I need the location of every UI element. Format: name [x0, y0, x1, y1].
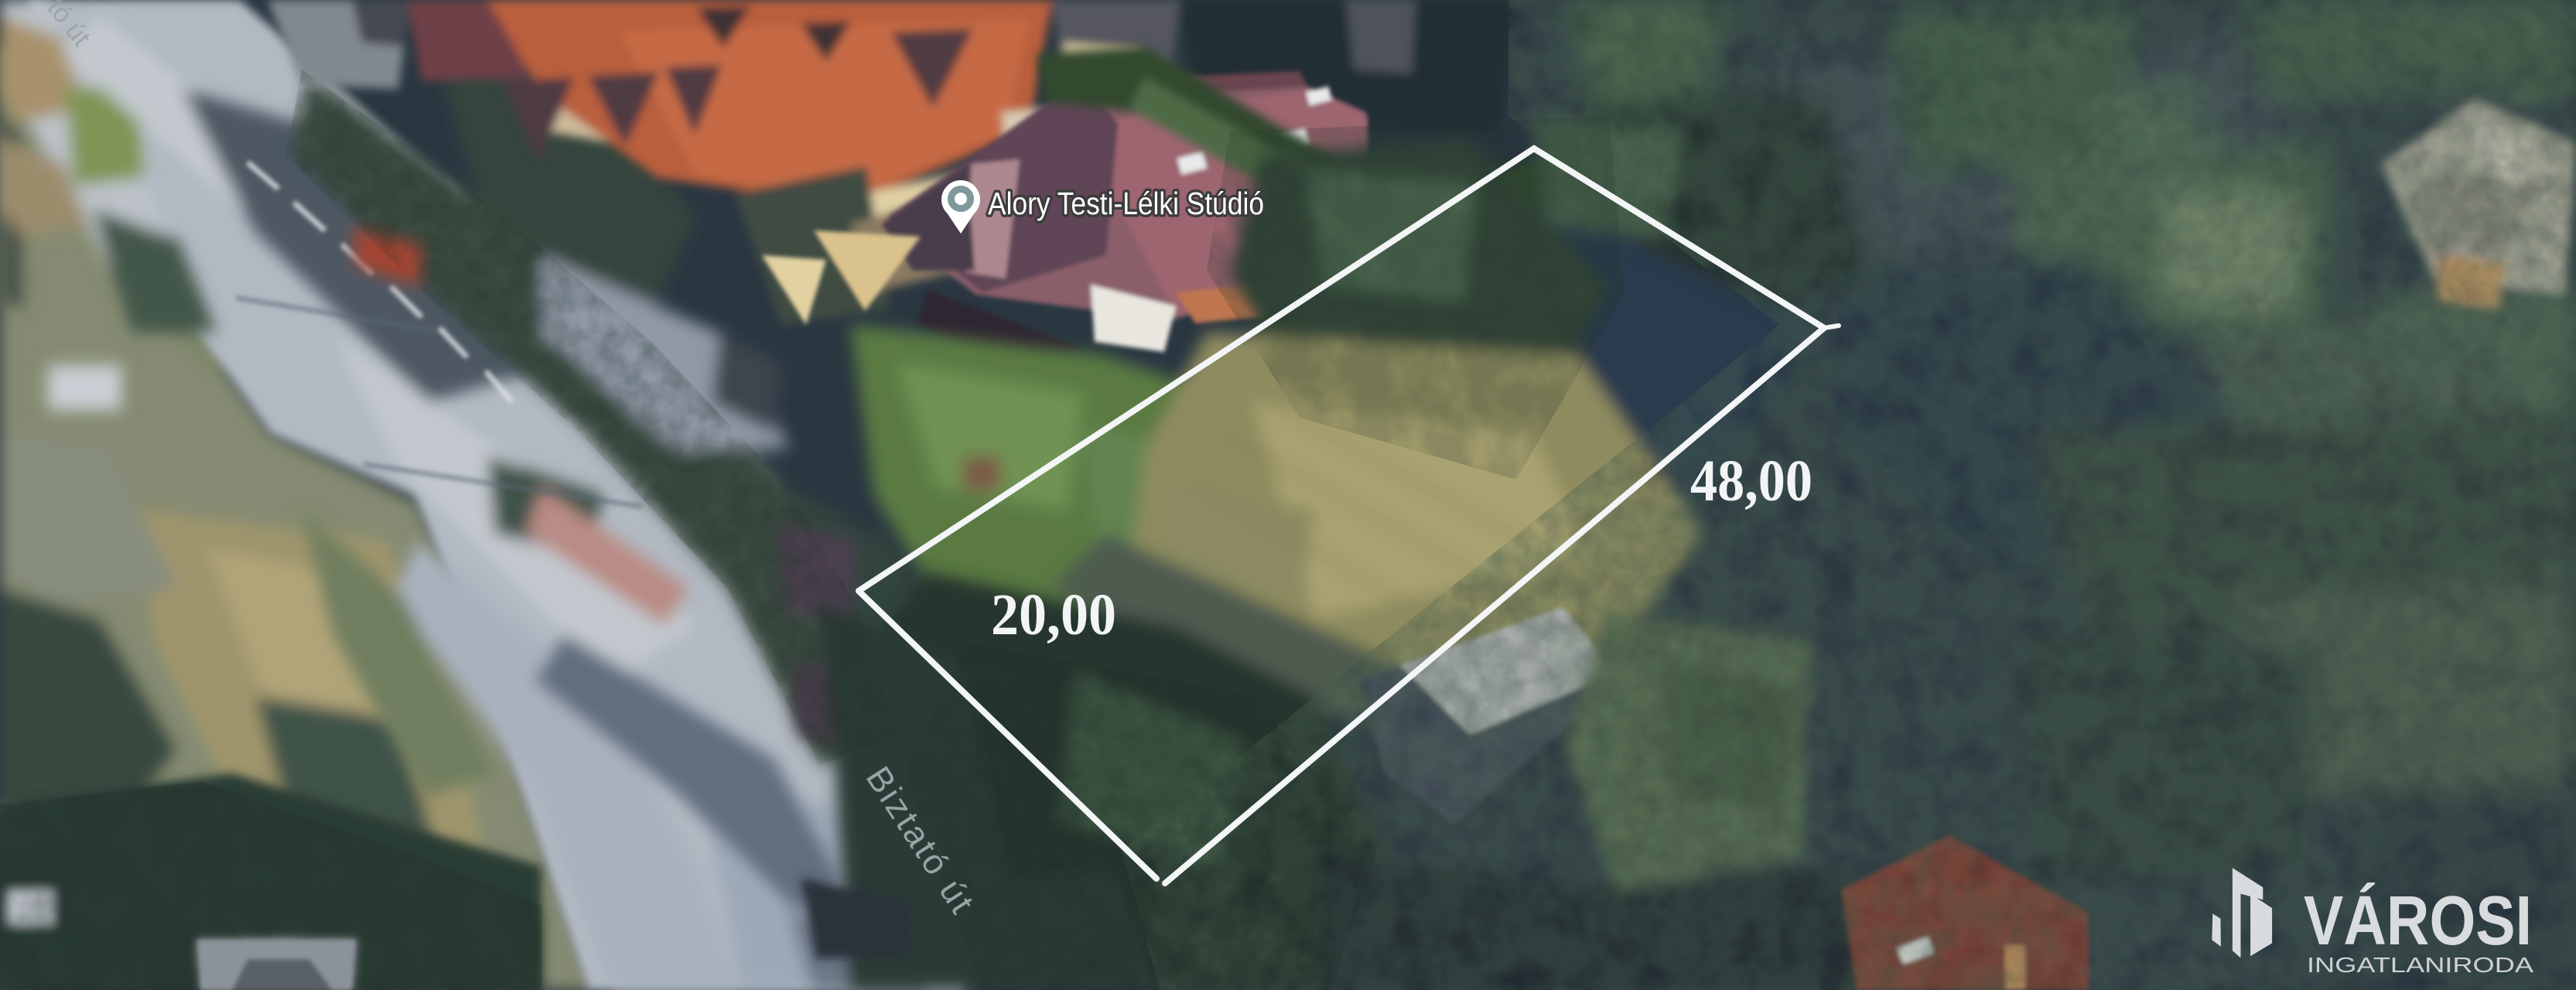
svg-text:20,00: 20,00: [991, 582, 1116, 647]
svg-text:48,00: 48,00: [1690, 449, 1812, 514]
svg-text:INGATLANIRODA: INGATLANIRODA: [2307, 953, 2533, 977]
svg-text:Alory Testi-Lélki Stúdió: Alory Testi-Lélki Stúdió: [988, 186, 1264, 221]
svg-text:VÁROSI: VÁROSI: [2304, 882, 2532, 960]
